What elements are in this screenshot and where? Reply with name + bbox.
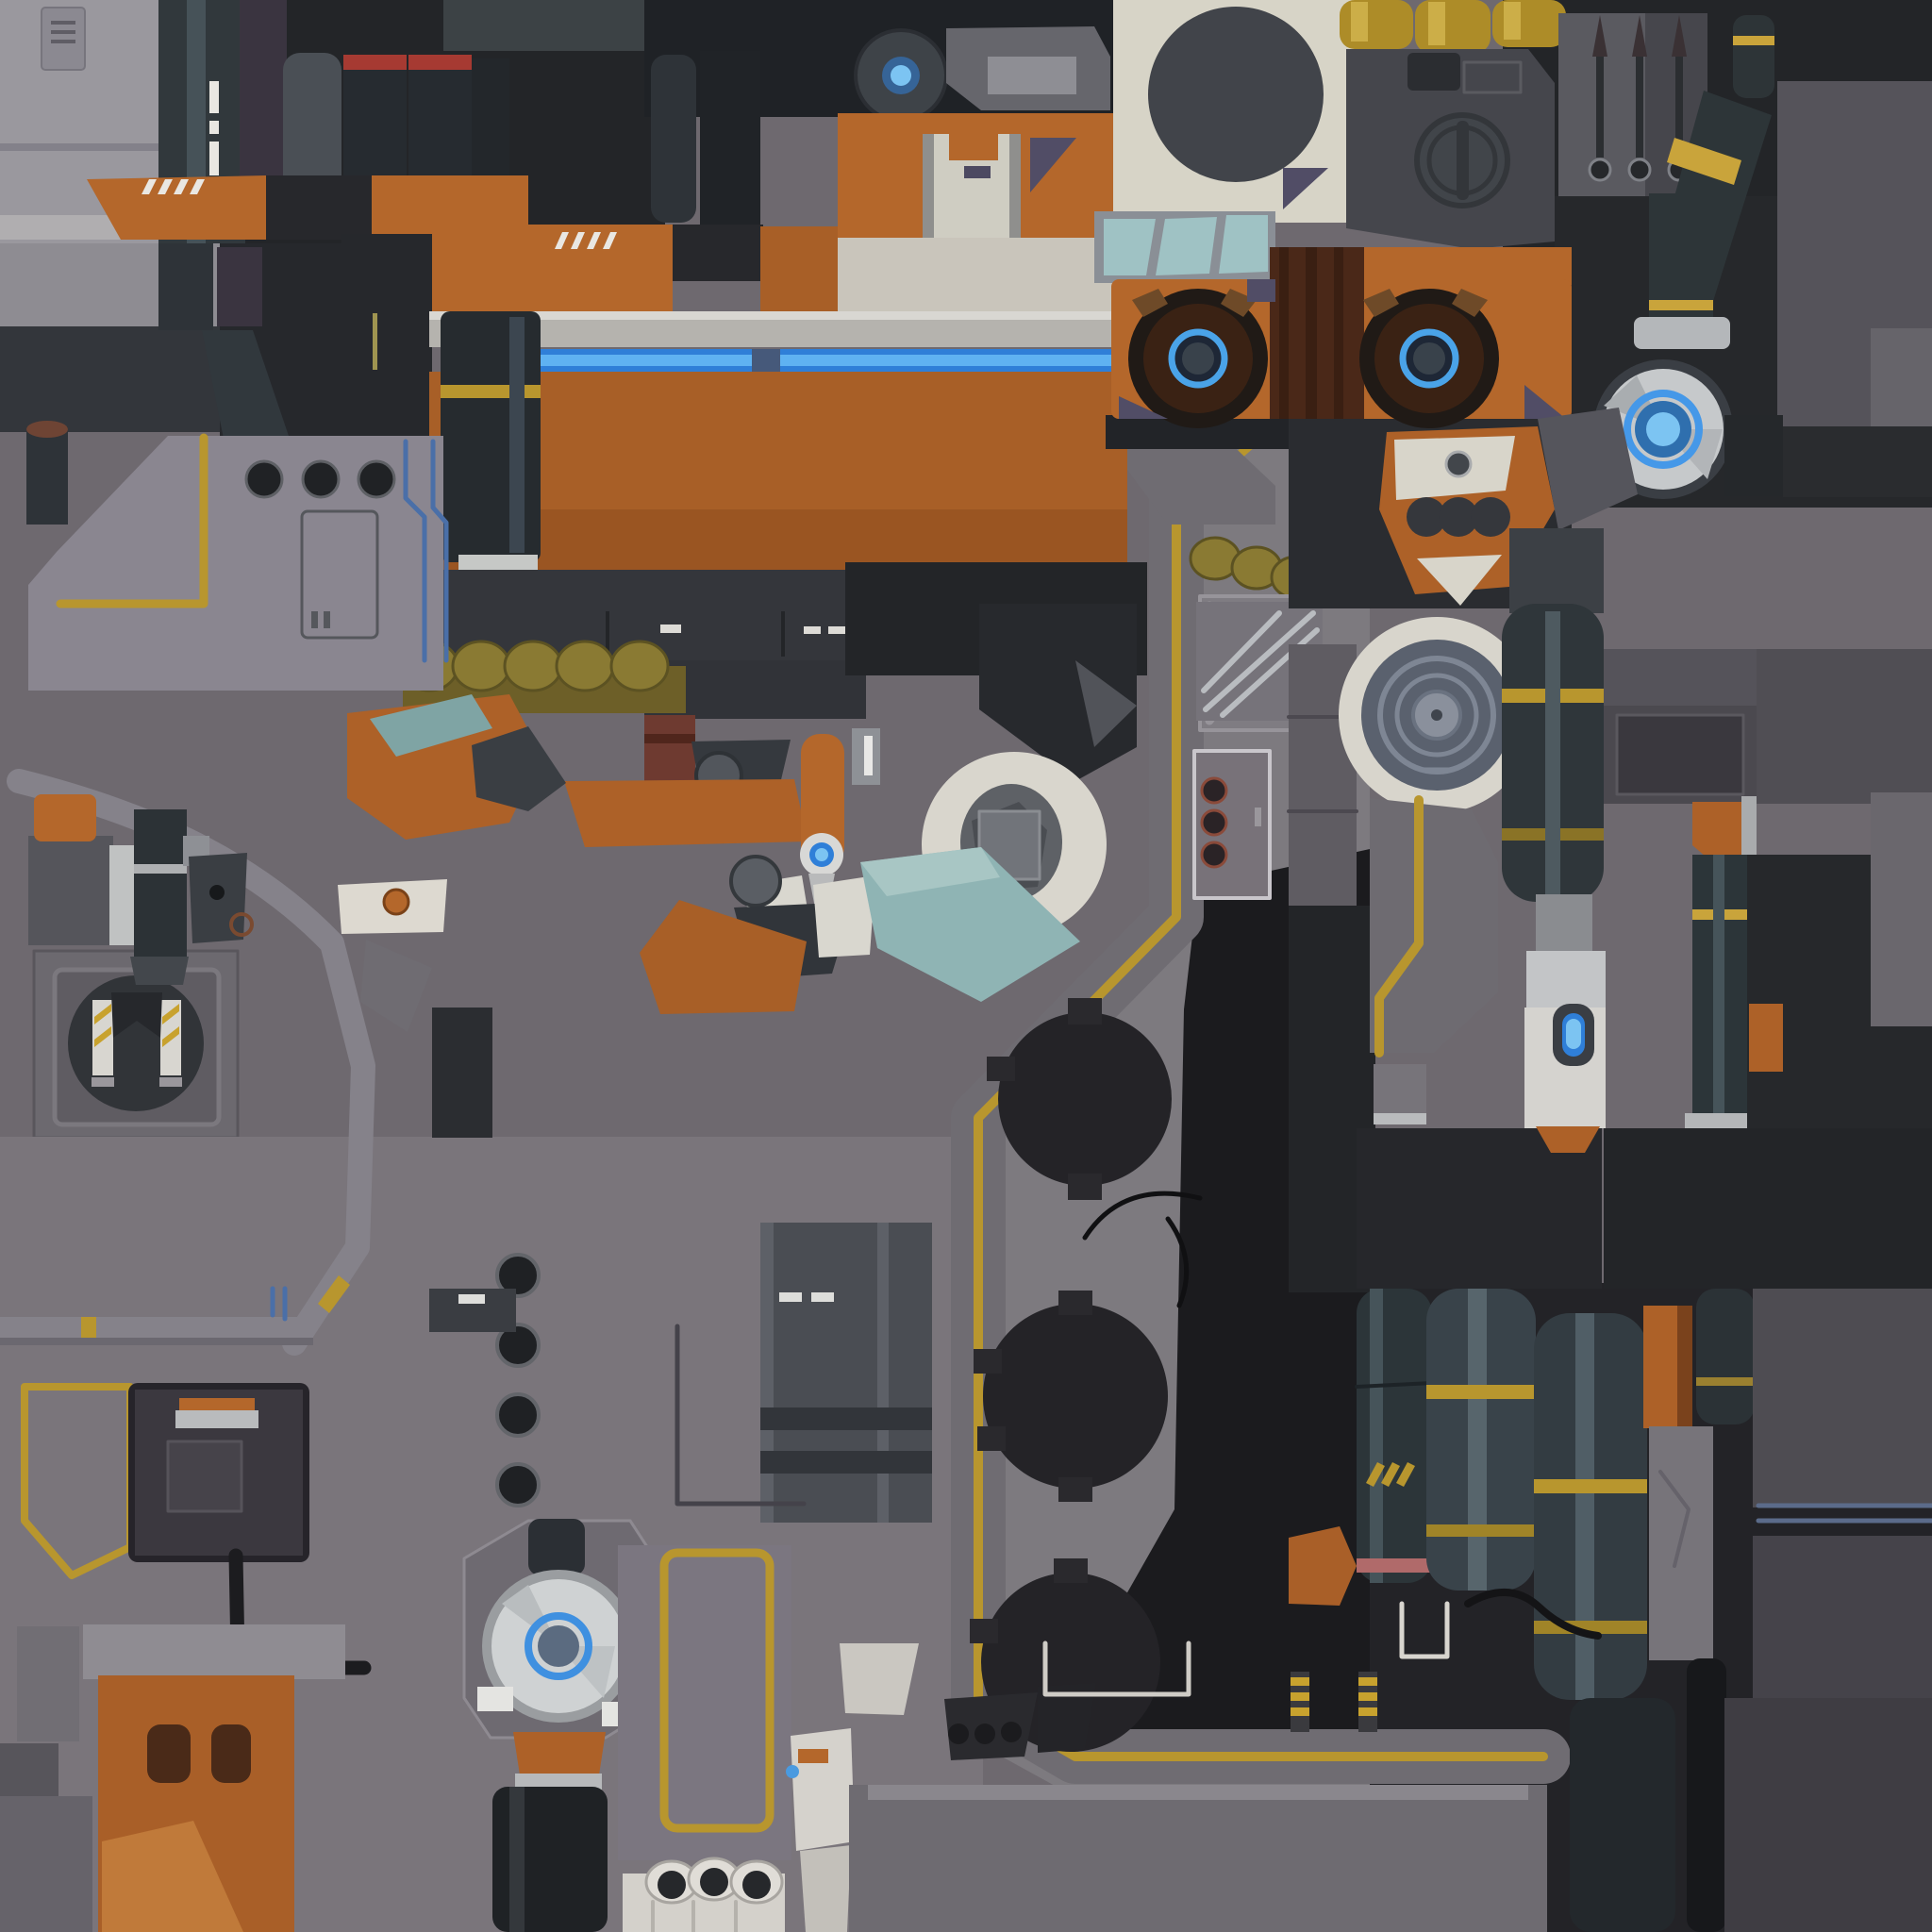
br-pipe-highlight (1468, 1289, 1487, 1591)
door-notch (949, 134, 998, 160)
tall-panel-highlight (760, 1223, 774, 1523)
tr-dark-lower (1783, 426, 1932, 497)
door-tick (324, 611, 330, 628)
pit-door-hole (1202, 810, 1226, 835)
rust-pipe-band (644, 734, 695, 743)
hand-foot (92, 1077, 114, 1087)
orange-bracket (34, 794, 96, 841)
screw-emblem-bar (1457, 121, 1469, 200)
dark-panel-small (432, 1008, 492, 1138)
platform (849, 1785, 1547, 1932)
device-step (1526, 951, 1606, 1011)
rm-panel (1757, 649, 1932, 804)
grey-box (28, 836, 113, 945)
post-hazard-tick (1291, 1692, 1309, 1701)
hand-foot (159, 1077, 182, 1087)
post-hazard-tick (1291, 1677, 1309, 1686)
tr-pipe-vertical (1649, 193, 1713, 331)
drawer-handle (660, 625, 681, 633)
port-top-block (528, 1519, 585, 1575)
rust-pipe-ring (26, 421, 68, 438)
glow-port-core (1646, 412, 1680, 446)
port-cylinder-highlight (509, 1787, 525, 1932)
bolt-hole (497, 1394, 539, 1436)
lm-pipe (217, 247, 262, 326)
tl-vent-box (42, 8, 85, 70)
hatch-tab (1054, 1558, 1088, 1583)
post-hazard-tick (1358, 1692, 1377, 1701)
hatch-circle (998, 1012, 1172, 1186)
spike-hole (1629, 159, 1650, 180)
brass-pipe (1340, 0, 1413, 49)
elbow-highlight (509, 317, 525, 553)
panel-hole (303, 461, 339, 497)
br-panel (1753, 1289, 1932, 1507)
claw-ledge (83, 1624, 345, 1679)
device-block (1536, 894, 1592, 955)
br-pipe-gold (1426, 1385, 1536, 1399)
pit-door-tick (1255, 808, 1261, 826)
pipe-purple (240, 0, 287, 177)
hatch-tab (1068, 998, 1102, 1024)
elbow-yellow-band (441, 385, 541, 398)
lm-pipe (158, 243, 213, 330)
mid-pipe (134, 809, 187, 958)
drawer-handle (828, 626, 845, 634)
pit-dot (948, 1724, 969, 1744)
tc-dark-block (700, 51, 760, 225)
br-orange-slab-side (1677, 1306, 1692, 1428)
scallop-bump (453, 641, 509, 691)
hatch-tab (1058, 1477, 1092, 1502)
cabinet-silver-band (175, 1410, 258, 1428)
pipe-white-dash (209, 142, 219, 175)
texture-canvas (0, 0, 1932, 1932)
spike-stem (1596, 52, 1604, 158)
corner-dash (458, 1294, 485, 1304)
glass-pane (1156, 217, 1217, 275)
tall-panel-dash (811, 1292, 834, 1302)
red-ring (343, 55, 407, 70)
br-pipe-highlight (1575, 1313, 1594, 1700)
strap-line (1306, 247, 1317, 419)
br-pipe (1357, 1289, 1432, 1583)
big-pipe-highlight (1545, 611, 1560, 894)
elbow-collar (458, 555, 538, 572)
hatch-circle (983, 1304, 1168, 1489)
tall-panel-band (760, 1407, 932, 1430)
brass-pipe (1415, 0, 1491, 53)
wishbone-lobe (1471, 497, 1510, 537)
mid-pipe-funnel (130, 957, 189, 985)
wishbone-pendant (1446, 452, 1471, 476)
hatch-tab (974, 1349, 1002, 1374)
tl-panel-groove (0, 143, 158, 151)
scallop-bump (611, 641, 668, 691)
orange-patch (1749, 1004, 1783, 1072)
arm-led-core (815, 848, 828, 861)
br-pipe-gold (1426, 1524, 1536, 1537)
post-hazard-tick (1358, 1677, 1377, 1686)
silver-fragment (791, 1728, 855, 1851)
br-pipe-highlight (1370, 1289, 1383, 1583)
hatch-tab (987, 1057, 1015, 1081)
cabinet-orange-strip (179, 1398, 255, 1412)
pipe-pink-ring (1357, 1558, 1432, 1573)
post-hazard-tick (1358, 1707, 1377, 1716)
tc-cylinder (651, 55, 696, 223)
mid-pipe-ring (134, 864, 187, 874)
hood-notch (1407, 53, 1460, 91)
spike-stem (1636, 52, 1643, 158)
tall-panel-dash (779, 1292, 802, 1302)
bracket-face (988, 57, 1076, 94)
device-capsule-core (1566, 1019, 1581, 1049)
claw-joint (731, 857, 780, 906)
tall-panel (760, 1223, 932, 1523)
door-stripe-edge (923, 134, 934, 238)
horizontal-pipe-shade (0, 1338, 313, 1345)
lens-core (1182, 342, 1214, 375)
hatch-tab (970, 1619, 998, 1643)
white-pipe-hole (700, 1868, 728, 1896)
cream-under-wall (838, 238, 1113, 317)
rm-dark-low (1604, 1128, 1932, 1289)
door-tick (311, 611, 318, 628)
pit-door-hole (1202, 778, 1226, 803)
tr-pipe-gold-band (1733, 36, 1774, 45)
platform-highlight (868, 1785, 1528, 1800)
claw-stub (211, 1724, 251, 1783)
tl-vent-line (51, 30, 75, 34)
tall-panel-band (760, 1451, 932, 1474)
cream-panel-hole (1148, 7, 1324, 182)
br-panel (1753, 1536, 1932, 1709)
rust-pipe (26, 426, 68, 525)
orange-patch (760, 226, 840, 313)
tr-pipe-stub (1724, 415, 1783, 496)
claw-stub (147, 1724, 191, 1783)
cog-port-inner (538, 1625, 579, 1667)
br-pipe-stub (1696, 1289, 1755, 1424)
spike-hole (1590, 159, 1610, 180)
purple-square-patch (1247, 279, 1275, 302)
scallop-bump (557, 641, 613, 691)
beam-dark-block (266, 175, 372, 240)
br-pipe-band (1696, 1377, 1755, 1386)
hatch-tab (1058, 1291, 1092, 1315)
orange-machine (564, 779, 808, 847)
post-hazard-tick (1291, 1707, 1309, 1716)
panel-hole (358, 461, 394, 497)
teal-pipe-highlight (1713, 855, 1724, 1140)
glow-stripe-notch (752, 349, 780, 373)
fragment-orange-mark (798, 1749, 828, 1763)
brass-pipe (1492, 0, 1566, 47)
texture-atlas (0, 0, 1932, 1932)
br-slot-pillar (1687, 1658, 1726, 1932)
tr-pipe-gold-band (1649, 300, 1713, 310)
panel-hole (246, 461, 282, 497)
big-pipe-block (1509, 528, 1604, 613)
br-pipe-lower (1570, 1698, 1675, 1932)
door-notch-tab (964, 166, 991, 178)
fragment-blue-dot (786, 1765, 799, 1778)
brass-highlight (1351, 2, 1368, 42)
disc-dot (1431, 709, 1442, 721)
pipe-white-dash (209, 81, 219, 113)
silver-tab-slash (864, 736, 873, 775)
tl-vent-line (51, 21, 75, 25)
silver-fragment (800, 1845, 851, 1932)
silver-strip (109, 845, 134, 945)
pit-door-hole (1202, 842, 1226, 867)
lm-dark-band (0, 326, 220, 432)
drawer-groove (781, 611, 785, 657)
br-pipe-gold (1534, 1479, 1647, 1493)
rm-pillar (1871, 792, 1932, 1026)
drawer-handle (804, 626, 821, 634)
duct-foot-band (1374, 1113, 1426, 1124)
bl-corner-panel (0, 1796, 92, 1932)
jag-dot (209, 885, 225, 900)
pit-dot (974, 1724, 995, 1744)
elbow-pipe (441, 311, 541, 562)
tall-panel-highlight (877, 1223, 889, 1523)
brass-highlight (1504, 2, 1521, 40)
orange-box (429, 225, 673, 313)
port-white-mark (477, 1687, 513, 1711)
door-stripe-edge (1009, 134, 1021, 238)
white-pipe-hole (658, 1871, 686, 1899)
hatch-tab (977, 1426, 1006, 1451)
glow-stripe-core (541, 355, 1127, 366)
yellow-frame-panel (618, 1545, 791, 1860)
strap-line (1279, 247, 1289, 419)
tr-pipe (1733, 15, 1774, 98)
red-ring (408, 55, 472, 70)
top-duct (443, 0, 679, 51)
dark-block (673, 225, 763, 281)
bolt-hole (497, 1464, 539, 1506)
lens-core (1413, 342, 1445, 375)
pipe-white-dash (209, 121, 219, 134)
glass-pane (1219, 215, 1268, 274)
strap-line (1334, 247, 1343, 419)
pit-dot (1001, 1722, 1022, 1742)
br-floor (1724, 1698, 1932, 1932)
gear-pin (384, 890, 408, 914)
scallop-bump (505, 641, 561, 691)
brass-highlight (1428, 2, 1445, 45)
rm-panel-inset (1617, 715, 1743, 794)
cabinet-inner-panel (168, 1441, 241, 1511)
silver-collar (1634, 317, 1730, 349)
knob-led-icon (891, 65, 911, 86)
bl-leg (17, 1626, 79, 1741)
tl-vent-line (51, 40, 75, 43)
white-pipe-hole (742, 1871, 771, 1899)
hatch-tab (1068, 1174, 1102, 1200)
